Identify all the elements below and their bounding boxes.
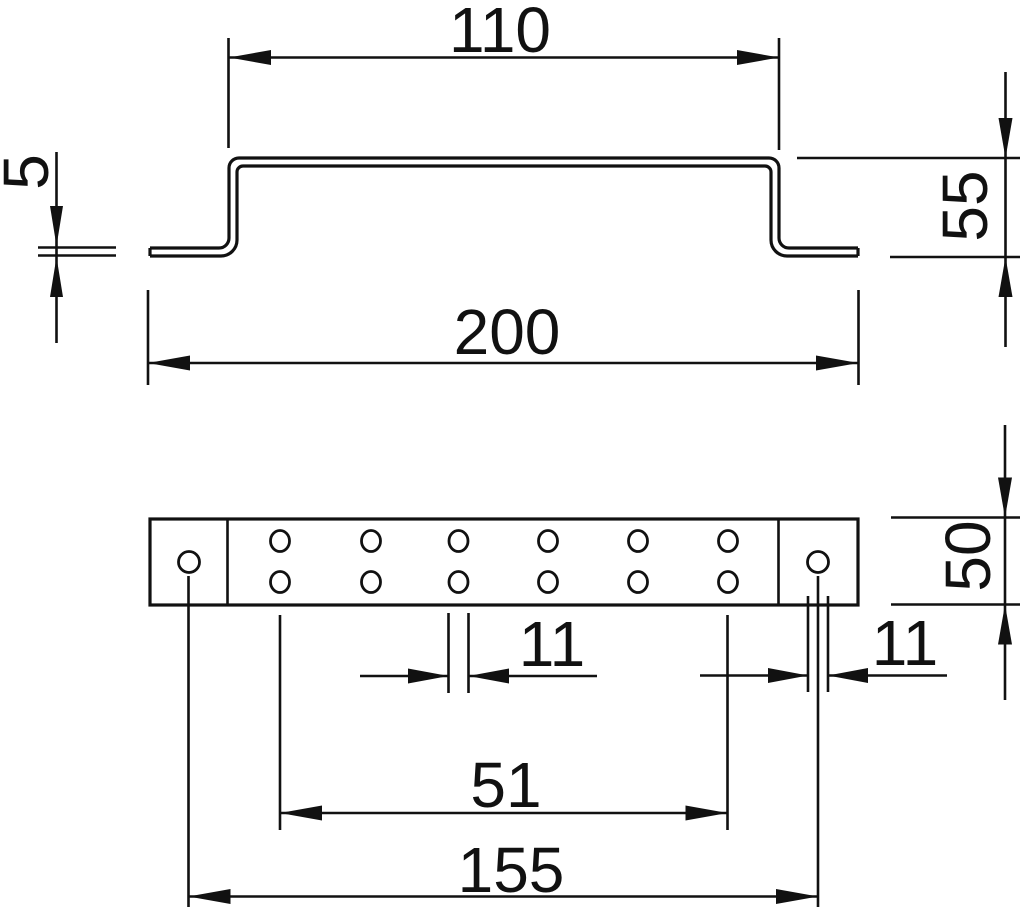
dimension-200: 200 — [148, 290, 859, 385]
arrowhead-left-icon — [280, 806, 322, 821]
dimension-value-155: 155 — [458, 834, 565, 906]
arrowhead-up-icon — [998, 605, 1012, 645]
dimension-value-110: 110 — [449, 0, 551, 66]
extension-lines-11-hole — [449, 613, 469, 693]
arrowhead-up-icon — [50, 257, 63, 297]
profile-end-caps — [150, 248, 858, 256]
arrowhead-left-icon — [229, 50, 271, 65]
extension-lines-5 — [38, 248, 116, 256]
arrowhead-left-icon — [189, 889, 231, 904]
hole — [362, 572, 381, 593]
hole — [271, 572, 290, 593]
arrowhead-down-icon — [999, 118, 1013, 158]
plan-dividers — [228, 519, 779, 605]
plan-view — [150, 519, 858, 605]
profile-cross-section — [150, 158, 858, 256]
technical-drawing: 110 5 55 200 — [0, 0, 1024, 913]
arrowhead-left-icon — [828, 668, 868, 683]
arrowhead-left-icon — [148, 356, 190, 371]
hole — [362, 531, 381, 552]
dimension-value-11-end: 11 — [872, 607, 938, 679]
dimension-110: 110 — [229, 0, 780, 150]
dimension-value-5: 5 — [0, 154, 62, 190]
dimension-5: 5 — [0, 152, 116, 343]
hole — [449, 531, 468, 552]
hole — [449, 572, 468, 593]
end-hole-right — [808, 552, 829, 573]
hole-grid — [271, 531, 738, 593]
hole — [629, 531, 648, 552]
arrowhead-right-icon — [768, 668, 808, 683]
dimension-value-51: 51 — [470, 749, 541, 821]
arrowhead-up-icon — [999, 257, 1013, 297]
hole — [719, 572, 738, 593]
hole — [719, 531, 738, 552]
hole — [539, 531, 558, 552]
profile-outer-contour — [150, 158, 858, 248]
plan-outline — [150, 519, 858, 605]
dimension-value-50: 50 — [932, 520, 1004, 591]
dimension-value-11-hole: 11 — [519, 608, 585, 680]
arrowhead-right-icon — [686, 806, 728, 821]
dimension-value-55: 55 — [929, 170, 1001, 241]
dimension-51: 51 — [280, 615, 728, 830]
hole — [629, 572, 648, 593]
hole — [271, 531, 290, 552]
drawing-svg: 110 5 55 200 — [0, 0, 1024, 913]
dimension-11-end-hole: 11 — [700, 596, 947, 692]
arrowhead-right-icon — [776, 889, 818, 904]
profile-inner-contour — [150, 166, 858, 256]
end-hole-left — [179, 552, 200, 573]
dimension-11-hole: 11 — [360, 608, 597, 693]
arrowhead-down-icon — [998, 478, 1012, 518]
dimension-55: 55 — [797, 72, 1020, 347]
arrowhead-right-icon — [408, 669, 449, 684]
arrowhead-right-icon — [816, 356, 859, 371]
arrowhead-right-icon — [737, 50, 779, 65]
arrowhead-left-icon — [469, 669, 510, 684]
dimension-value-200: 200 — [454, 296, 561, 368]
hole — [539, 572, 558, 593]
dimension-155: 155 — [189, 576, 819, 907]
arrowhead-down-icon — [50, 206, 63, 246]
